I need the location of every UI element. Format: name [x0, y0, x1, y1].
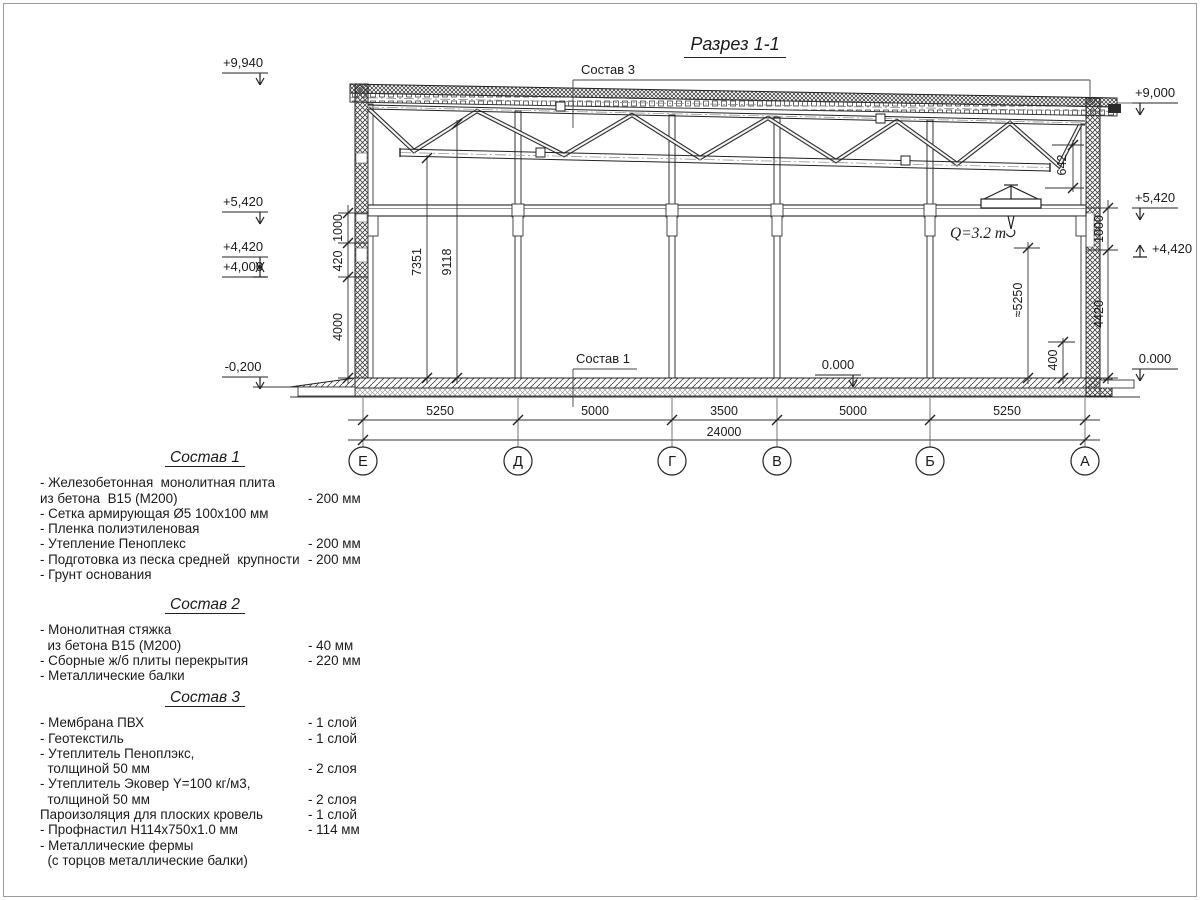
axis-label-v: В — [772, 454, 782, 470]
dim-bottom-1: 5250 — [426, 404, 454, 418]
columns — [515, 111, 933, 378]
dim-right-1000: 1000 — [1092, 215, 1106, 243]
dim-bottom-3: 3500 — [710, 404, 738, 418]
building-structure — [253, 84, 1140, 397]
elev-left-0200: -0,200 — [225, 359, 262, 374]
elev-left-4000: +4,000 — [223, 259, 263, 274]
dim-left-1000: 1000 — [331, 214, 345, 242]
dim-bottom-4: 5000 — [839, 404, 867, 418]
list-item: из бетона В15 (М200)- 200 мм — [40, 491, 370, 506]
elev-left-4420: +4,420 — [223, 239, 263, 254]
elev-inner-0000: 0.000 — [822, 357, 855, 372]
composition-3-title: Состав 3 — [40, 690, 370, 707]
composition-2-block: Состав 2 - Монолитная стяжка из бетона В… — [40, 597, 370, 683]
list-item: - Геотекстиль- 1 слой — [40, 731, 370, 746]
dim-bottom-5: 5250 — [993, 404, 1021, 418]
list-item: - Утеплитель Пеноплэкс, — [40, 746, 370, 761]
composition-3-block: Состав 3 - Мембрана ПВХ- 1 слой - Геотек… — [40, 690, 370, 868]
left-wall — [355, 84, 368, 378]
elev-left-9940: +9,940 — [223, 55, 263, 70]
list-item: - Металлические фермы — [40, 838, 370, 853]
elev-right-4420: +4,420 — [1152, 241, 1192, 256]
dimension-lines — [338, 120, 1118, 447]
list-item: - Сборные ж/б плиты перекрытия- 220 мм — [40, 653, 370, 668]
dim-bottom-2: 5000 — [581, 404, 609, 418]
leader-sostav3-label: Состав 3 — [581, 62, 635, 77]
axis-bubbles — [349, 447, 1099, 475]
axis-label-a: А — [1080, 454, 1090, 470]
axis-label-g: Г — [668, 454, 676, 470]
crane-capacity-label: Q=3.2 т — [950, 225, 1006, 242]
dim-bay-7351: 7351 — [410, 248, 424, 276]
list-item: Пароизоляция для плоских кровель- 1 слой — [40, 807, 370, 822]
list-item: - Монолитная стяжка — [40, 622, 370, 637]
axis-label-b: Б — [925, 454, 935, 470]
drawing-title: Разрез 1-1 — [600, 34, 870, 58]
dim-truss-642: 642 — [1055, 155, 1069, 176]
dim-left-420: 420 — [331, 251, 345, 272]
list-item: - Грунт основания — [40, 567, 370, 582]
elev-left-5420: +5,420 — [223, 194, 263, 209]
list-item: толщиной 50 мм- 2 слоя — [40, 761, 370, 776]
composition-1-title: Состав 1 — [40, 450, 370, 467]
list-item: - Сетка армирующая Ø5 100х100 мм — [40, 506, 370, 521]
list-item: (с торцов металлические балки) — [40, 853, 370, 868]
floor-slab — [253, 378, 1140, 397]
list-item: - Железобетонная монолитная плита — [40, 475, 370, 490]
list-item: - Мембрана ПВХ- 1 слой — [40, 715, 370, 730]
list-item: - Профнастил Н114х750х1.0 мм- 114 мм — [40, 822, 370, 837]
list-item: - Металлические балки — [40, 668, 370, 683]
list-item: - Утепление Пеноплекс- 200 мм — [40, 536, 370, 551]
dim-crane-5250: ≈5250 — [1011, 283, 1025, 318]
crane-hook-icon — [1007, 230, 1015, 237]
list-item: - Пленка полиэтиленовая — [40, 521, 370, 536]
composition-1-block: Состав 1 - Железобетонная монолитная пли… — [40, 450, 370, 582]
roof-end-cap — [1108, 104, 1121, 113]
elev-right-0000: 0.000 — [1139, 351, 1172, 366]
leader-sostav1-label: Состав 1 — [576, 351, 630, 366]
list-item: - Утеплитель Эковер Y=100 кг/м3, — [40, 776, 370, 791]
elevation-arrows — [253, 73, 1147, 389]
dim-right-400: 400 — [1046, 350, 1060, 371]
dim-right-4420: 4420 — [1092, 300, 1106, 328]
section-drawing: Состав 3 Состав 1 Q=3.2 т +9,940 +5,420 … — [0, 0, 1200, 480]
composition-2-title: Состав 2 — [40, 597, 370, 614]
dim-total-24000: 24000 — [707, 425, 742, 439]
list-item: толщиной 50 мм- 2 слоя — [40, 792, 370, 807]
axis-label-d: Д — [513, 454, 523, 470]
list-item: из бетона В15 (М200)- 40 мм — [40, 638, 370, 653]
elev-right-9000: +9,000 — [1135, 85, 1175, 100]
dim-left-4000: 4000 — [331, 313, 345, 341]
list-item: - Подготовка из песка средней крупности-… — [40, 552, 370, 567]
elev-right-5420: +5,420 — [1135, 190, 1175, 205]
dim-bay-9118: 9118 — [440, 249, 454, 276]
